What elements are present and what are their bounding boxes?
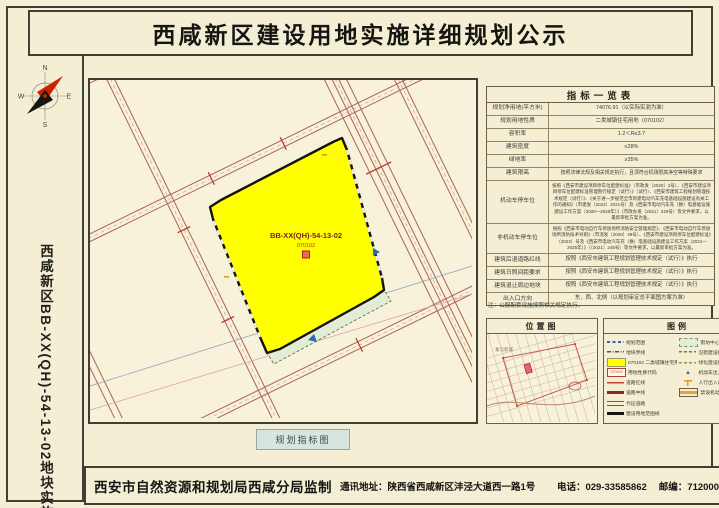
land-use-code-label: 070102 — [297, 243, 315, 249]
legend-item: 070102 用地性质代码 — [607, 369, 677, 377]
location-map-title: 位置图 — [487, 319, 597, 334]
table-row: 非机动车停车位 按照《西安市电动自行车停放场所消防安全管理规定》、《西安市电动自… — [487, 224, 714, 254]
table-row: 规划用地性质 二类城镇住宅用地（070102） — [487, 116, 714, 129]
agency-name: 西安市自然资源和规划局西咸分局监制 — [94, 476, 332, 496]
row-value: ≥35% — [549, 155, 714, 167]
table-row: 绿地率 ≥35% — [487, 155, 714, 168]
row-value: 按照《西安市建筑工程规划管理技术规定（试行）》执行 — [549, 280, 714, 292]
table-row: 建筑限高 按照法律法规及相关规定执行，且须符合机场限高净空等特殊要求 — [487, 168, 714, 181]
legend-body: 规划范围 地块界线 070102 二类城镇住宅用地 — [604, 334, 719, 423]
row-label: 规划用地性质 — [487, 116, 549, 128]
legend-label: 道路中线 — [626, 389, 645, 396]
row-label: 非机动车停车位 — [487, 224, 549, 253]
postcode: 邮编：712000 — [659, 479, 719, 493]
legend-label: 代征道路 — [626, 400, 645, 407]
table-row: 建筑日照间距要求 按照《西安市建筑工程规划管理技术规定（试行）》执行 — [487, 267, 714, 280]
legend-item: 绿化建设控制线 — [679, 358, 719, 366]
svg-text:W: W — [18, 94, 25, 101]
row-label: 建筑日照间距要求 — [487, 267, 549, 279]
map-caption: 规划指标图 — [256, 429, 350, 450]
legend-swatch-icon: 070102 — [607, 368, 626, 377]
legend-swatch-icon — [607, 339, 624, 346]
table-rows: 规划净用地(平方米) 74076.91（以实际实测为准） 规划用地性质 二类城镇… — [487, 103, 714, 305]
planning-map-drawing: BB-XX(QH)-54-13-02 070102 — [90, 80, 472, 418]
legend-item: 街坊中心绿地 — [679, 338, 719, 346]
legend-item: 代征道路 — [607, 399, 677, 407]
legend-box: 图例 规划范围 地块界线 — [603, 318, 719, 424]
table-row: 建筑退让周边地块 按照《西安市建筑工程规划管理技术规定（试行）》执行 — [487, 280, 714, 293]
row-value: 按照《西安市建筑工程规划管理技术规定（试行）》执行 — [549, 267, 714, 279]
legend-label: 街坊中心绿地 — [700, 339, 719, 346]
row-value: 按照法律法规及相关规定执行，且须符合机场限高净空等特殊要求 — [549, 168, 714, 180]
bottom-right-panels: 位置图 — [486, 318, 713, 424]
legend-swatch-icon — [679, 359, 696, 366]
legend-swatch-icon — [679, 338, 698, 347]
legend-swatch-icon — [607, 410, 624, 417]
legend-swatch-icon — [607, 358, 626, 367]
legend-item: 机动车出入口 — [679, 369, 719, 377]
compass-icon: N S W E — [18, 62, 72, 128]
legend-item: 070102 二类城镇住宅用地 — [607, 358, 677, 366]
row-label: 规划净用地(平方米) — [487, 103, 549, 115]
legend-label: 规划范围 — [626, 339, 645, 346]
legend-title: 图例 — [604, 319, 719, 334]
table-note: 注：公服配套设施按照相关规定执行。 — [488, 301, 712, 309]
row-value: 74076.91（以实际实测为准） — [549, 103, 714, 115]
row-value: 按照《西安市建筑工程规划管理技术规定（试行）》执行 — [549, 254, 714, 266]
svg-text:E: E — [67, 94, 72, 101]
legend-swatch-icon — [679, 349, 696, 356]
table-row: 规划净用地(平方米) 74076.91（以实际实测为准） — [487, 103, 714, 116]
legend-column-right: 街坊中心绿地 沿街建设控制线 绿化建设控制线 — [679, 338, 719, 421]
planning-map: BB-XX(QH)-54-13-02 070102 — [88, 78, 478, 424]
legend-swatch-icon — [679, 388, 698, 397]
row-value: 按照《西安市电动自行车停放场所消防安全管理规定》、《西安市电动自行车停放场所消防… — [549, 224, 714, 253]
legend-item: 沿街建设控制线 — [679, 348, 719, 356]
legend-swatch-icon — [607, 389, 624, 396]
legend-label: 建设用地范围线 — [626, 410, 660, 417]
svg-text:N: N — [42, 65, 47, 72]
legend-label: 地块界线 — [626, 349, 645, 356]
row-label: 建筑限高 — [487, 168, 549, 180]
legend-item: 禁设机动车出入口段 — [679, 389, 719, 397]
legend-item: 人行出入口 — [679, 379, 719, 387]
legend-label: 用地性质代码 — [628, 369, 657, 376]
legend-label: 人行出入口 — [698, 379, 719, 386]
area-label: 秦汉新城 — [495, 346, 513, 353]
location-map: 秦汉新城 — [487, 334, 597, 423]
legend-label: 禁设机动车出入口段 — [700, 389, 719, 396]
legend-swatch-icon — [607, 379, 624, 386]
table-row: 建筑后退道路红线 按照《西安市建筑工程规划管理技术规定（试行）》执行 — [487, 254, 714, 267]
footer-bar: 西安市自然资源和规划局西咸分局监制 通讯地址：陕西省西咸新区沣泾大道西一路1号 … — [84, 466, 719, 505]
sidebar-vertical-title: 西咸新区BB-XX(QH)-54-13-02地块实施详细规划 — [35, 244, 55, 508]
location-map-box: 位置图 — [486, 318, 598, 424]
parcel-marker — [303, 251, 310, 258]
legend-column-left: 规划范围 地块界线 070102 二类城镇住宅用地 — [607, 338, 677, 421]
row-label: 建筑退让周边地块 — [487, 280, 549, 292]
row-label: 建筑后退道路红线 — [487, 254, 549, 266]
table-title: 指标一览表 — [487, 87, 714, 103]
row-value: 二类城镇住宅用地（070102） — [549, 116, 714, 128]
legend-label: 道路红线 — [626, 379, 645, 386]
legend-item: 道路中线 — [607, 389, 677, 397]
row-label: 机动车停车位 — [487, 181, 549, 223]
row-value: 1.2＜R≤3.7 — [549, 129, 714, 141]
page-title: 西咸新区建设用地实施详细规划公示 — [28, 10, 693, 56]
phone-number: 电话：029-33585862 — [557, 479, 647, 493]
legend-swatch-icon — [607, 349, 624, 356]
notice-page: 西咸新区建设用地实施详细规划公示 N S W E 西咸新区BB-XX(QH)-5… — [0, 0, 719, 508]
legend-label: 沿街建设控制线 — [698, 349, 719, 356]
legend-item: 地块界线 — [607, 348, 677, 356]
parcel-code-label: BB-XX(QH)-54-13-02 — [270, 231, 342, 240]
table-row: 容积率 1.2＜R≤3.7 — [487, 129, 714, 142]
row-label: 建筑密度 — [487, 142, 549, 154]
legend-item: 规划范围 — [607, 338, 677, 346]
legend-label: 绿化建设控制线 — [698, 359, 719, 366]
row-label: 绿地率 — [487, 155, 549, 167]
indicator-table: 指标一览表 规划净用地(平方米) 74076.91（以实际实测为准） 规划用地性… — [486, 86, 715, 306]
legend-item: 道路红线 — [607, 379, 677, 387]
sidebar: N S W E 西咸新区BB-XX(QH)-54-13-02地块实施详细规划 — [8, 54, 84, 500]
svg-text:S: S — [43, 122, 48, 128]
legend-label: 070102 二类城镇住宅用地 — [628, 359, 677, 366]
row-label: 容积率 — [487, 129, 549, 141]
table-row: 机动车停车位 按照《西安市建设项目停车位配建标准》（市政发〔2020〕2号）、《… — [487, 181, 714, 224]
contact-address: 通讯地址：陕西省西咸新区沣泾大道西一路1号 — [340, 479, 535, 493]
legend-swatch-icon — [679, 369, 696, 376]
legend-swatch-icon — [679, 379, 696, 386]
row-value: 按照《西安市建设项目停车位配建标准》（市政发〔2020〕2号）、《西安市建设项目… — [549, 181, 714, 223]
legend-label: 机动车出入口 — [698, 369, 719, 376]
row-value: ≤28% — [549, 142, 714, 154]
legend-item: 建设用地范围线 — [607, 409, 677, 417]
legend-swatch-icon — [607, 400, 624, 407]
table-row: 建筑密度 ≤28% — [487, 142, 714, 155]
